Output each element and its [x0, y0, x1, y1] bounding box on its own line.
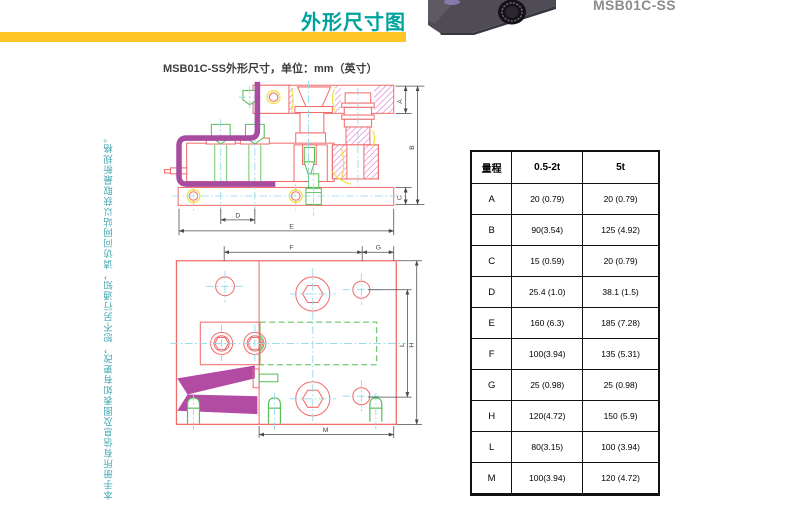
dim-letter: L — [471, 432, 512, 463]
top-view — [170, 261, 405, 431]
dim-value: 15 (0.59) — [512, 246, 583, 277]
dimension-table-body: A20 (0.79)20 (0.79)B90(3.54)125 (4.92)C1… — [471, 184, 659, 495]
dim-label-g: G — [376, 245, 381, 252]
dim-value: 100(3.94) — [512, 463, 583, 495]
dimension-table: 量程 0.5-2t 5t A20 (0.79)20 (0.79)B90(3.54… — [470, 150, 660, 496]
side-view — [165, 81, 406, 216]
dim-value: 20 (0.79) — [583, 184, 659, 215]
dim-value: 120 (4.72) — [583, 463, 659, 495]
dim-label-d: D — [235, 212, 240, 219]
product-photo — [425, 0, 560, 38]
dim-value: 38.1 (1.5) — [583, 277, 659, 308]
dim-value: 160 (6.3) — [512, 308, 583, 339]
dim-letter: B — [471, 215, 512, 246]
dim-letter: F — [471, 339, 512, 370]
dim-letter: E — [471, 308, 512, 339]
dim-label-l: L — [399, 343, 406, 347]
datasheet-page: 外形尺寸图 MSB01C-SS MSB01C-SS外形尺寸，单位：mm（英寸） … — [0, 0, 785, 507]
hole-bottom — [506, 6, 519, 18]
dim-value: 90(3.54) — [512, 215, 583, 246]
product-name: MSB01C-SS — [593, 0, 676, 13]
dim-value: 20 (0.79) — [512, 184, 583, 215]
dim-value: 80(3.15) — [512, 432, 583, 463]
table-row: C15 (0.59)20 (0.79) — [471, 246, 659, 277]
disclaimer-note: 本手册所有信息及图表如有更改，恕不另行通知，请访问网站以获取最新规格。 — [103, 148, 117, 500]
dim-label-m: M — [323, 427, 329, 434]
col-header-capacity-2: 5t — [583, 151, 659, 184]
dim-value: 135 (5.31) — [583, 339, 659, 370]
table-row: A20 (0.79)20 (0.79) — [471, 184, 659, 215]
dim-label-a: A — [397, 99, 404, 104]
dim-letter: A — [471, 184, 512, 215]
dim-letter: M — [471, 463, 512, 495]
table-row: F100(3.94)135 (5.31) — [471, 339, 659, 370]
dim-value: 25 (0.98) — [512, 370, 583, 401]
title-accent-bar — [0, 32, 406, 42]
table-row: D25.4 (1.0)38.1 (1.5) — [471, 277, 659, 308]
bracket-hole — [269, 93, 278, 102]
drawing-caption: MSB01C-SS外形尺寸，单位：mm（英寸） — [163, 60, 378, 76]
dim-letter: C — [471, 246, 512, 277]
dim-label-f: F — [289, 245, 293, 252]
table-row: L80(3.15)100 (3.94) — [471, 432, 659, 463]
dim-letter: G — [471, 370, 512, 401]
dim-value: 185 (7.28) — [583, 308, 659, 339]
page-title: 外形尺寸图 — [0, 6, 406, 35]
dim-value: 120(4.72) — [512, 401, 583, 432]
load-shaft — [300, 112, 324, 132]
dim-letter: H — [471, 401, 512, 432]
table-row: M100(3.94)120 (4.72) — [471, 463, 659, 495]
dim-value: 125 (4.92) — [583, 215, 659, 246]
dim-value: 25 (0.98) — [583, 370, 659, 401]
dim-value: 100(3.94) — [512, 339, 583, 370]
table-row: G25 (0.98)25 (0.98) — [471, 370, 659, 401]
table-row: B90(3.54)125 (4.92) — [471, 215, 659, 246]
col-header-capacity-1: 0.5-2t — [512, 151, 583, 184]
dim-label-h: H — [408, 343, 415, 348]
dim-value: 25.4 (1.0) — [512, 277, 583, 308]
dim-value: 150 (5.9) — [583, 401, 659, 432]
table-header-row: 量程 0.5-2t 5t — [471, 151, 659, 184]
col-header-range: 量程 — [471, 151, 512, 184]
dim-value: 100 (3.94) — [583, 432, 659, 463]
dim-letter: D — [471, 277, 512, 308]
table-row: H120(4.72)150 (5.9) — [471, 401, 659, 432]
dim-label-b: B — [409, 145, 416, 150]
dim-label-e: E — [289, 223, 294, 230]
dim-label-c: C — [396, 195, 403, 200]
table-row: E160 (6.3)185 (7.28) — [471, 308, 659, 339]
dim-value: 20 (0.79) — [583, 246, 659, 277]
dimension-drawing: A B C D E F G L H M — [140, 75, 460, 507]
